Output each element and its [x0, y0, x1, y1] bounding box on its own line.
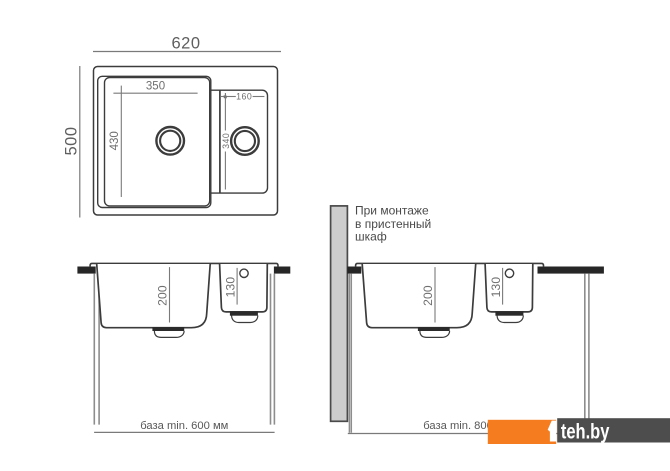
- svg-text:база min. 600 мм: база min. 600 мм: [140, 420, 228, 432]
- svg-text:620: 620: [171, 35, 200, 53]
- svg-text:130: 130: [489, 277, 503, 298]
- svg-text:130: 130: [224, 277, 238, 298]
- svg-text:200: 200: [421, 285, 435, 306]
- svg-text:При монтаже: При монтаже: [355, 204, 429, 218]
- svg-text:teh.by: teh.by: [561, 420, 610, 443]
- svg-text:шкаф: шкаф: [355, 229, 387, 243]
- svg-text:350: 350: [146, 81, 165, 93]
- svg-text:340: 340: [221, 133, 231, 149]
- svg-text:500: 500: [62, 126, 80, 155]
- svg-text:160: 160: [236, 92, 252, 102]
- svg-text:430: 430: [109, 131, 121, 150]
- svg-text:200: 200: [156, 285, 170, 306]
